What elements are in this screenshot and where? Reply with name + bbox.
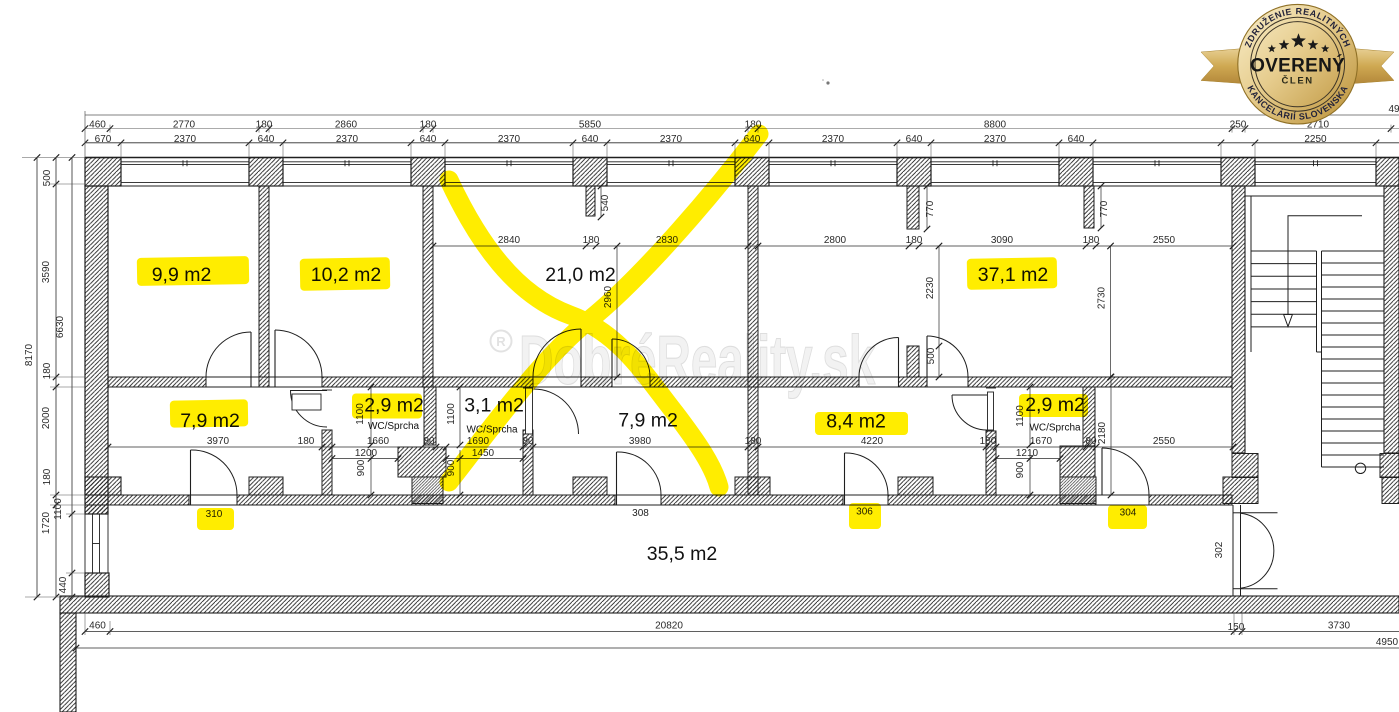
svg-text:640: 640 [258,134,275,145]
svg-text:2230: 2230 [925,276,936,299]
svg-text:2770: 2770 [173,120,196,131]
svg-text:2180: 2180 [1097,421,1108,444]
svg-text:2840: 2840 [498,235,521,246]
svg-text:3090: 3090 [991,235,1014,246]
svg-text:2550: 2550 [1153,436,1176,447]
svg-text:2370: 2370 [984,134,1007,145]
svg-text:5850: 5850 [579,120,602,131]
svg-text:WC/Sprcha: WC/Sprcha [1029,423,1081,434]
svg-text:49: 49 [1388,104,1399,115]
svg-text:180: 180 [1083,235,1100,246]
svg-text:R: R [496,334,506,349]
svg-text:180: 180 [298,436,315,447]
svg-text:2370: 2370 [822,134,845,145]
svg-text:2370: 2370 [498,134,521,145]
svg-text:500: 500 [926,347,937,364]
svg-text:2730: 2730 [1097,286,1108,309]
svg-text:3590: 3590 [41,260,52,283]
svg-text:2000: 2000 [41,406,52,429]
svg-text:35,5 m2: 35,5 m2 [647,543,717,565]
svg-text:770: 770 [1099,200,1110,217]
svg-text:21,0 m2: 21,0 m2 [545,264,615,286]
svg-text:3980: 3980 [629,436,652,447]
svg-text:180: 180 [745,436,762,447]
svg-text:900: 900 [1015,461,1026,478]
svg-text:302: 302 [1214,541,1225,558]
svg-text:1720: 1720 [41,511,52,534]
svg-text:2550: 2550 [1153,235,1176,246]
svg-text:180: 180 [980,436,997,447]
svg-text:2370: 2370 [336,134,359,145]
svg-text:180: 180 [583,235,600,246]
svg-text:180: 180 [420,120,437,131]
svg-text:900: 900 [356,459,367,476]
svg-text:670: 670 [95,134,112,145]
svg-text:180: 180 [256,120,273,131]
svg-text:640: 640 [1068,134,1085,145]
svg-text:WC/Sprcha: WC/Sprcha [368,421,420,432]
svg-text:80: 80 [1085,436,1097,447]
svg-text:80: 80 [423,436,435,447]
svg-text:OVERENÝ: OVERENÝ [1250,54,1345,76]
svg-text:ČLEN: ČLEN [1281,75,1313,87]
svg-text:8170: 8170 [24,343,35,366]
svg-text:180: 180 [42,468,53,485]
svg-text:2370: 2370 [660,134,683,145]
svg-text:640: 640 [906,134,923,145]
svg-text:3730: 3730 [1328,621,1351,632]
svg-text:308: 308 [632,508,649,519]
svg-text:440: 440 [58,576,69,593]
svg-text:20820: 20820 [655,621,683,632]
svg-text:2370: 2370 [174,134,197,145]
svg-text:460: 460 [89,120,106,131]
svg-text:770: 770 [925,200,936,217]
svg-text:460: 460 [89,621,106,632]
svg-text:4950: 4950 [1376,637,1399,648]
svg-text:3970: 3970 [207,436,230,447]
svg-text:1670: 1670 [1030,436,1053,447]
svg-text:640: 640 [420,134,437,145]
svg-text:80: 80 [522,436,534,447]
svg-text:1100: 1100 [53,498,64,520]
svg-text:1200: 1200 [355,448,378,459]
svg-text:180: 180 [906,235,923,246]
svg-text:6630: 6630 [55,315,66,338]
svg-text:2250: 2250 [1304,134,1327,145]
svg-text:640: 640 [582,134,599,145]
svg-text:8800: 8800 [984,120,1007,131]
svg-text:2860: 2860 [335,120,358,131]
svg-text:1100: 1100 [446,403,457,425]
svg-text:2800: 2800 [824,235,847,246]
svg-text:540: 540 [600,194,611,211]
svg-text:1210: 1210 [1016,448,1039,459]
svg-text:4220: 4220 [861,436,884,447]
